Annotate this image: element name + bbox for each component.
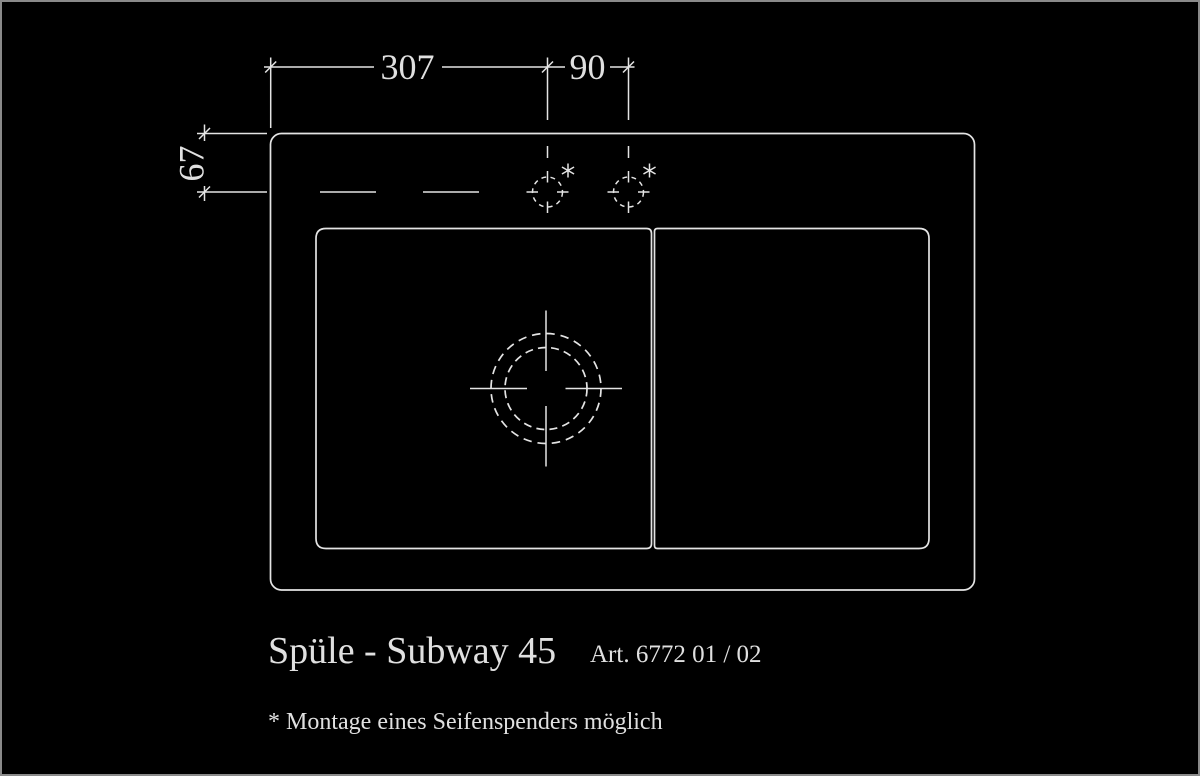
drain-center-mark-icon: [470, 311, 622, 467]
asterisk-mark-2-icon: [643, 164, 655, 178]
article-number: Art. 6772 01 / 02: [590, 641, 762, 668]
tap-hole-1: [527, 171, 569, 213]
product-title: Spüle - Subway 45: [268, 630, 556, 672]
sink-outline-group: [271, 134, 975, 591]
dimension-left-group: 67: [172, 125, 268, 202]
drain-symbol: [470, 311, 622, 467]
sink-technical-drawing: 307 90 67 Spüle - Subway 45 Art. 6772 01…: [0, 0, 1200, 776]
basin-right-outline: [655, 229, 930, 549]
tap-hole-2-center-mark-icon: [608, 171, 650, 213]
tap-hole-1-center-mark-icon: [527, 171, 569, 213]
footnote: * Montage eines Seifenspenders möglich: [268, 709, 663, 735]
dimension-label-67: 67: [172, 146, 212, 182]
dimension-label-90: 90: [570, 47, 606, 87]
dimension-top-group: 307 90: [264, 47, 635, 128]
drawing-canvas: 307 90 67 Spüle - Subway 45 Art. 6772 01…: [0, 0, 1200, 776]
asterisk-mark-1-icon: [562, 164, 574, 178]
sink-outer-outline: [271, 134, 975, 591]
tap-centerline: [320, 146, 629, 192]
dimension-label-307: 307: [381, 47, 435, 87]
tap-hole-2: [608, 171, 650, 213]
